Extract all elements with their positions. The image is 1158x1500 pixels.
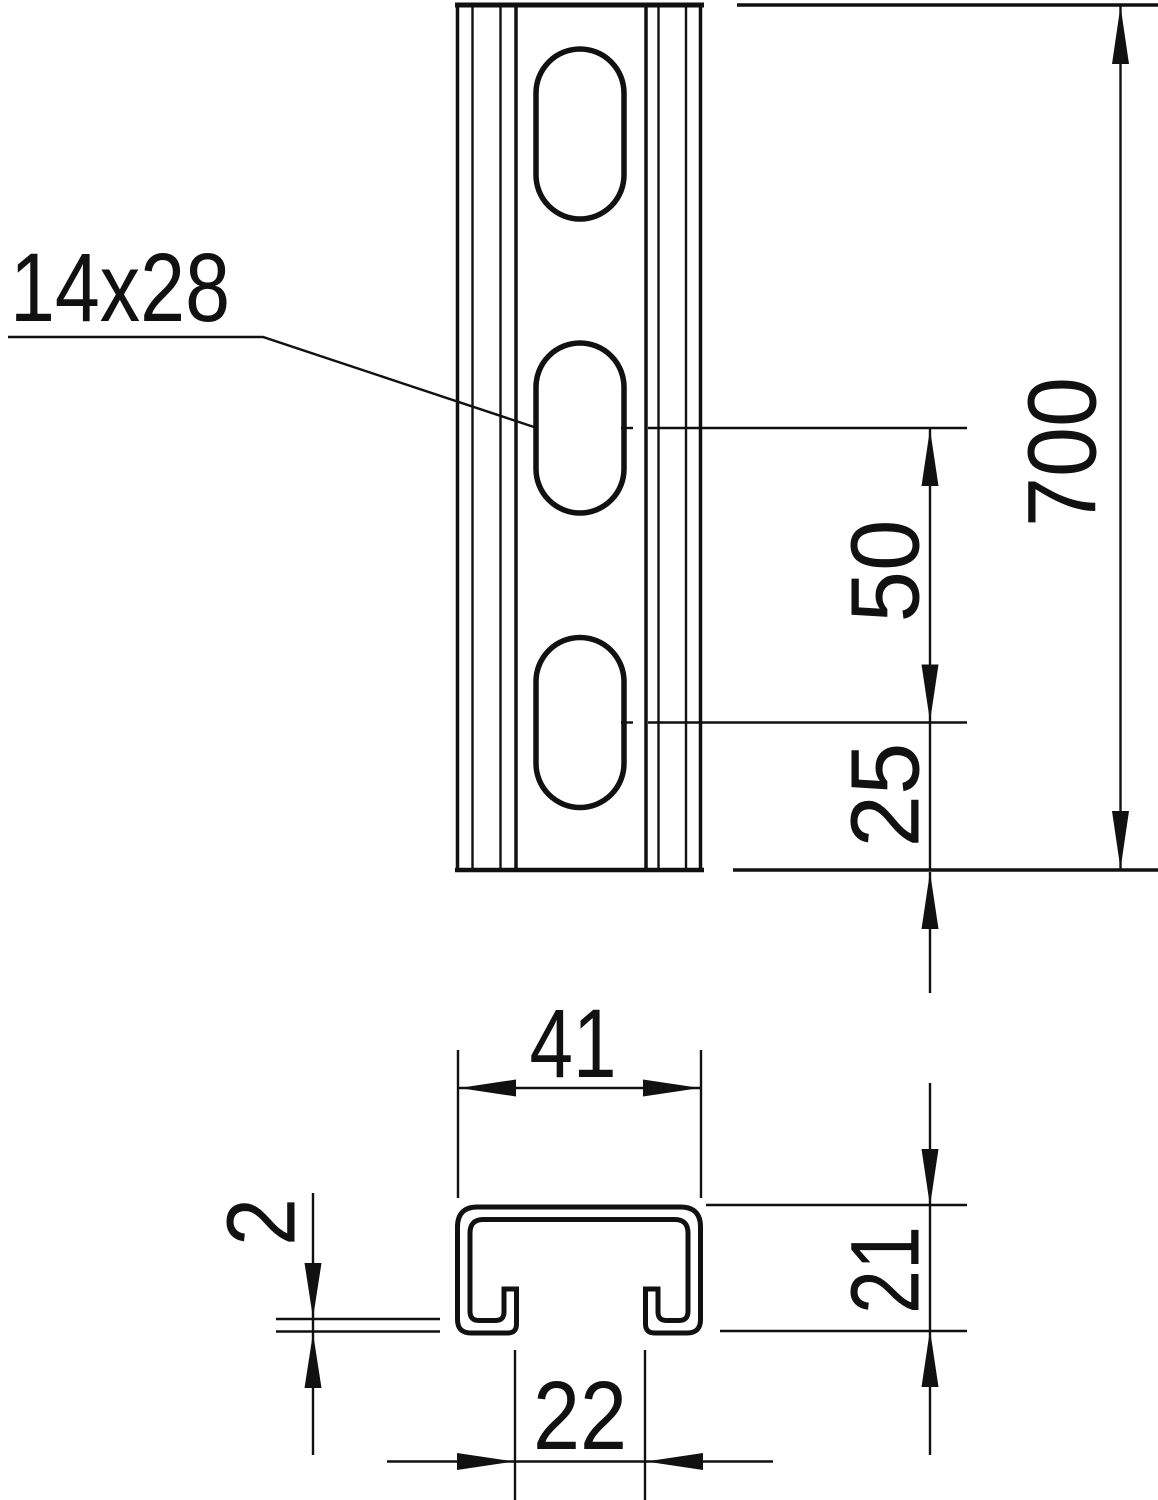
dimension-opening-width-22: 22 [387,1350,773,1500]
profile-cross-section [458,1207,701,1333]
dim-text-total-length: 700 [1008,377,1117,527]
strut-channel-drawing: 14x28 50 25 700 41 [0,0,1158,1500]
dim-text-slot-spacing: 50 [831,520,940,623]
arrowhead-down [922,665,939,722]
slot-top [536,49,624,219]
dim-text-material-thickness: 2 [207,1198,316,1246]
arrowhead-up-outside [922,872,939,929]
profile-outline [458,1207,701,1333]
dimension-material-thickness-2: 2 [207,1193,441,1455]
arrowhead-down-outside [305,1263,322,1318]
arrowhead-left-outside [646,1453,703,1470]
arrowhead-up [922,429,939,486]
slot-bottom [536,638,624,808]
dim-text-outer-width: 41 [530,989,617,1098]
dimension-end-distance-25: 25 [831,743,940,994]
arrowhead-right [643,1080,700,1097]
slot-size-label: 14x28 [10,233,230,342]
dim-text-opening-width: 22 [533,1361,627,1470]
arrowhead-down [1112,811,1129,869]
arrowhead-up [1112,6,1129,64]
slot-middle [536,343,624,513]
arrowhead-down-outside [922,1149,939,1206]
dim-text-end-distance: 25 [831,743,940,848]
dim-text-profile-height: 21 [831,1226,940,1314]
arrowhead-left [459,1080,516,1097]
technical-drawing-page: 14x28 50 25 700 41 [0,0,1158,1500]
dimension-outer-width-41: 41 [458,989,701,1198]
dimension-profile-height-21: 21 [706,1083,967,1455]
rail-front-view [455,3,704,872]
arrowhead-up-outside [305,1333,322,1388]
arrowhead-right-outside [457,1453,514,1470]
arrowhead-up-outside [922,1330,939,1387]
dimension-total-length-700: 700 [733,5,1158,870]
